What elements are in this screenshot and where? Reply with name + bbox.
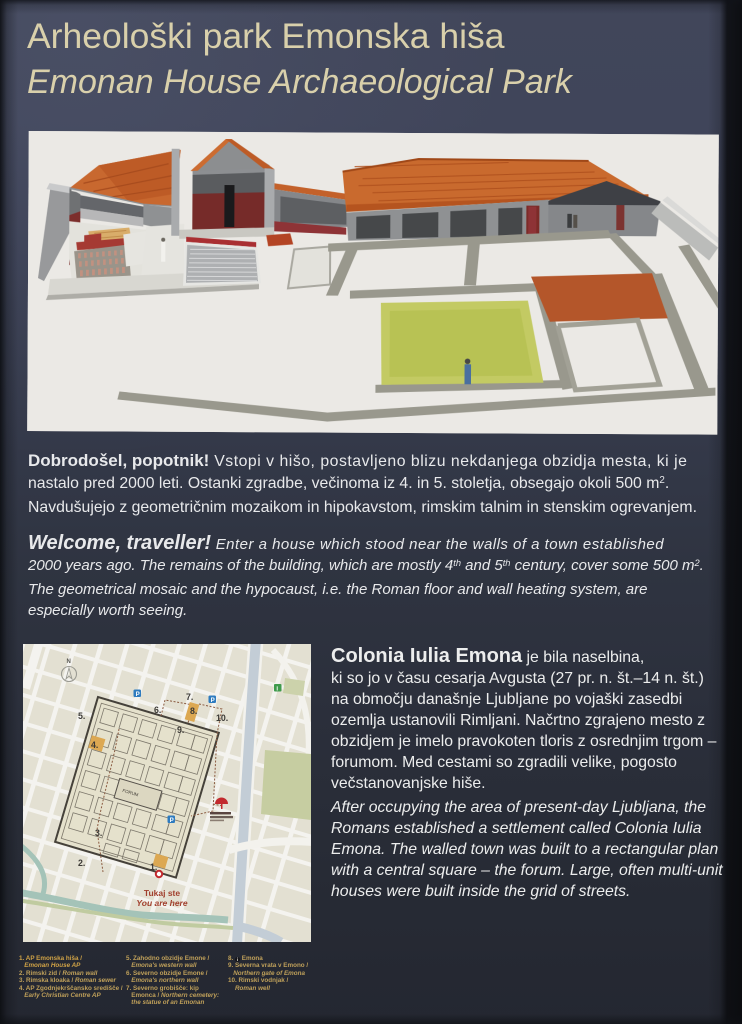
svg-text:10.: 10. — [216, 713, 228, 723]
svg-text:9.: 9. — [177, 725, 184, 735]
svg-text:7.: 7. — [186, 692, 193, 702]
svg-text:P: P — [211, 697, 215, 704]
svg-text:8.: 8. — [190, 706, 197, 716]
svg-text:Tukaj ste: Tukaj ste — [144, 888, 180, 898]
svg-text:3.: 3. — [95, 828, 102, 838]
svg-text:5.: 5. — [78, 711, 85, 721]
svg-text:2.: 2. — [78, 858, 85, 868]
svg-text:P: P — [136, 691, 140, 698]
svg-text:P: P — [170, 817, 174, 824]
svg-text:4.: 4. — [91, 740, 98, 750]
svg-text:N: N — [67, 659, 71, 665]
svg-text:1.: 1. — [150, 862, 157, 872]
svg-text:—·—: —·— — [531, 398, 545, 404]
svg-text:6.: 6. — [154, 705, 161, 715]
svg-text:You are here: You are here — [136, 898, 187, 908]
